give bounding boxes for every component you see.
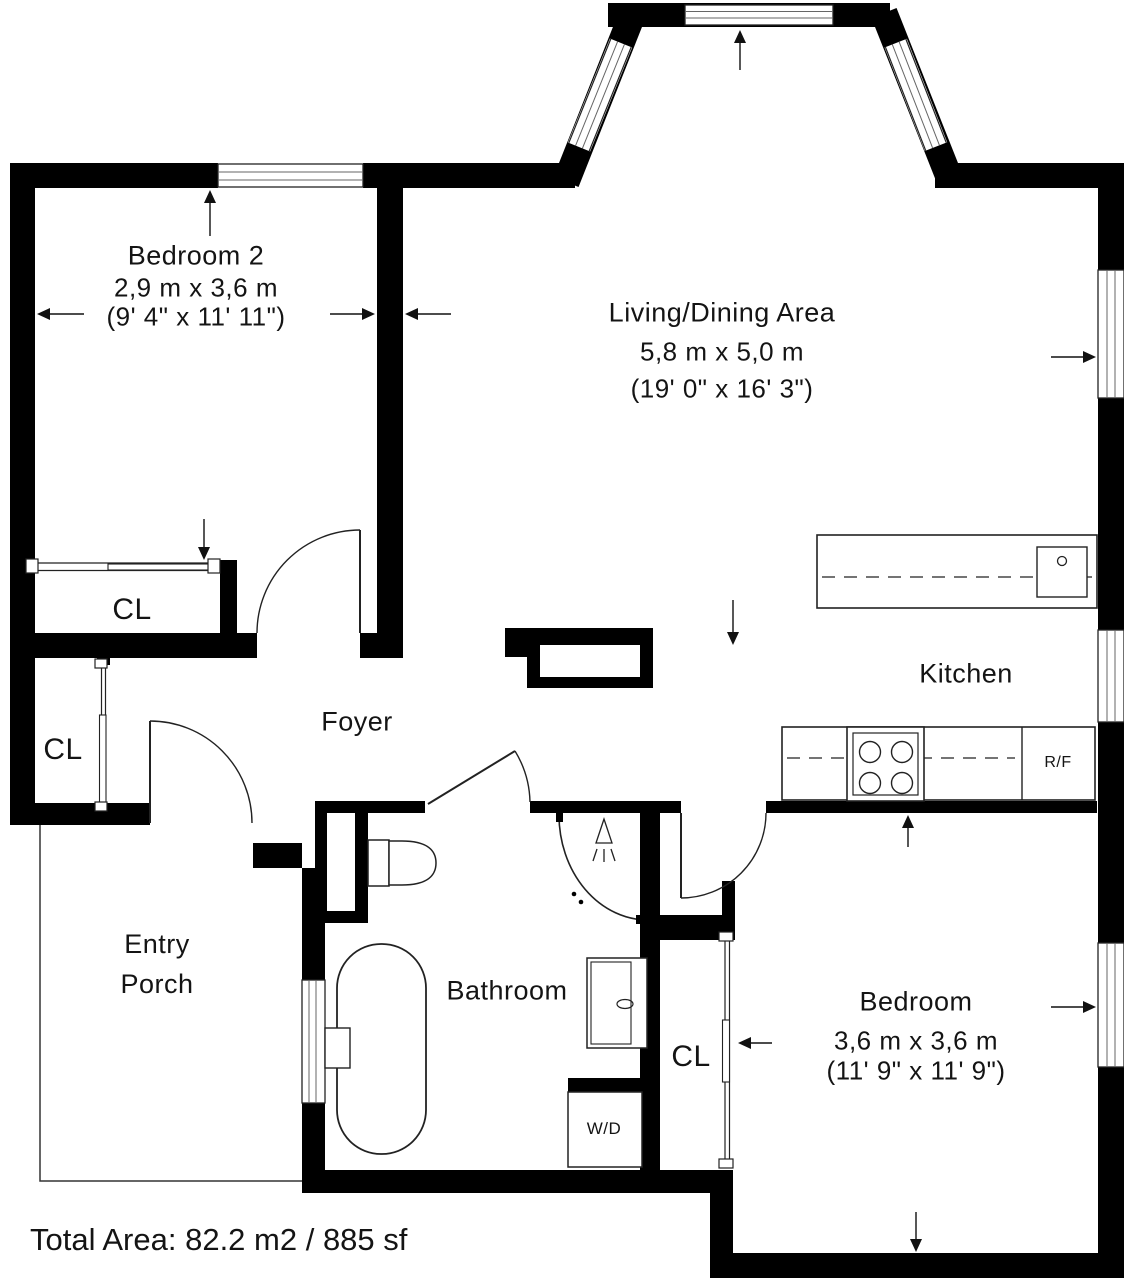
shower-head-icon bbox=[593, 819, 615, 862]
arrow-bedroom-down bbox=[910, 1212, 922, 1252]
kitchen-island-counter bbox=[817, 535, 1097, 608]
walls bbox=[10, 3, 1124, 1278]
closet-label-left: CL bbox=[43, 733, 82, 767]
bathroom-door bbox=[428, 751, 530, 804]
room-label-living-dining: Living/Dining Area bbox=[609, 298, 836, 329]
arrow-bedroom-closet-left bbox=[738, 1037, 772, 1049]
left-closet-sliding-door bbox=[95, 659, 107, 811]
room-label-foyer: Foyer bbox=[321, 707, 393, 738]
kitchen-right-window bbox=[1098, 630, 1124, 722]
bay-left-window bbox=[569, 39, 631, 151]
entry-porch-line1: Entry bbox=[120, 924, 193, 964]
bathtub-faucet-deck bbox=[325, 1028, 350, 1068]
fireplace-column bbox=[505, 628, 653, 688]
stove bbox=[847, 727, 924, 801]
arrow-bedroom2-right bbox=[330, 308, 375, 320]
room-dims-living-imperial: (19' 0" x 16' 3") bbox=[631, 374, 814, 405]
vanity-sink bbox=[587, 958, 647, 1048]
entry-door bbox=[150, 721, 252, 823]
bathtub bbox=[325, 944, 426, 1154]
bedroom2-window bbox=[218, 164, 363, 187]
room-label-bedroom: Bedroom bbox=[859, 987, 972, 1018]
arrow-bedroom2-window-up bbox=[204, 190, 216, 236]
room-dims-bedroom2-imperial: (9' 4" x 11' 11") bbox=[107, 302, 286, 333]
arrow-bedroom-right bbox=[1051, 1001, 1096, 1013]
bathroom-west-window bbox=[302, 980, 325, 1103]
arrow-kitchen-wall-up bbox=[902, 815, 914, 847]
floor-plan: Bedroom 2 2,9 m x 3,6 m (9' 4" x 11' 11"… bbox=[0, 0, 1124, 1280]
arrow-bedroom2-left bbox=[37, 308, 84, 320]
arrow-bay-up bbox=[734, 30, 746, 70]
bay-top-window bbox=[685, 5, 833, 25]
fridge-label: R/F bbox=[1044, 754, 1071, 772]
total-area-text: Total Area: 82.2 m2 / 885 sf bbox=[30, 1222, 407, 1258]
room-label-bathroom: Bathroom bbox=[446, 976, 567, 1007]
kitchen-sink bbox=[1037, 547, 1087, 597]
bedroom-right-window bbox=[1098, 943, 1124, 1067]
toilet bbox=[368, 840, 436, 886]
closet-label-upper: CL bbox=[112, 593, 151, 627]
closet-label-bedroom: CL bbox=[671, 1040, 710, 1074]
upper-closet-sliding-door bbox=[26, 559, 220, 573]
floor-plan-drawing bbox=[0, 0, 1124, 1280]
arrow-closet-down bbox=[198, 519, 210, 560]
entry-porch-line2: Porch bbox=[120, 964, 193, 1004]
washer-dryer-label: W/D bbox=[587, 1119, 622, 1139]
room-dims-bedroom-imperial: (11' 9" x 11' 9") bbox=[827, 1056, 1006, 1087]
arrow-living-left bbox=[405, 308, 451, 320]
room-dims-living-metric: 5,8 m x 5,0 m bbox=[640, 337, 804, 368]
room-label-entry-porch: Entry Porch bbox=[120, 924, 193, 1004]
arrow-living-down bbox=[727, 600, 739, 645]
room-label-kitchen: Kitchen bbox=[919, 659, 1013, 690]
room-label-bedroom2: Bedroom 2 bbox=[128, 241, 265, 272]
room-dims-bedroom2-metric: 2,9 m x 3,6 m bbox=[114, 273, 278, 304]
room-dims-bedroom-metric: 3,6 m x 3,6 m bbox=[834, 1026, 998, 1057]
bedroom2-door bbox=[257, 530, 360, 633]
bay-right-window bbox=[885, 39, 946, 151]
bedroom-closet-sliding-door bbox=[719, 932, 733, 1168]
living-right-window bbox=[1098, 270, 1124, 398]
arrow-living-right bbox=[1051, 351, 1096, 363]
